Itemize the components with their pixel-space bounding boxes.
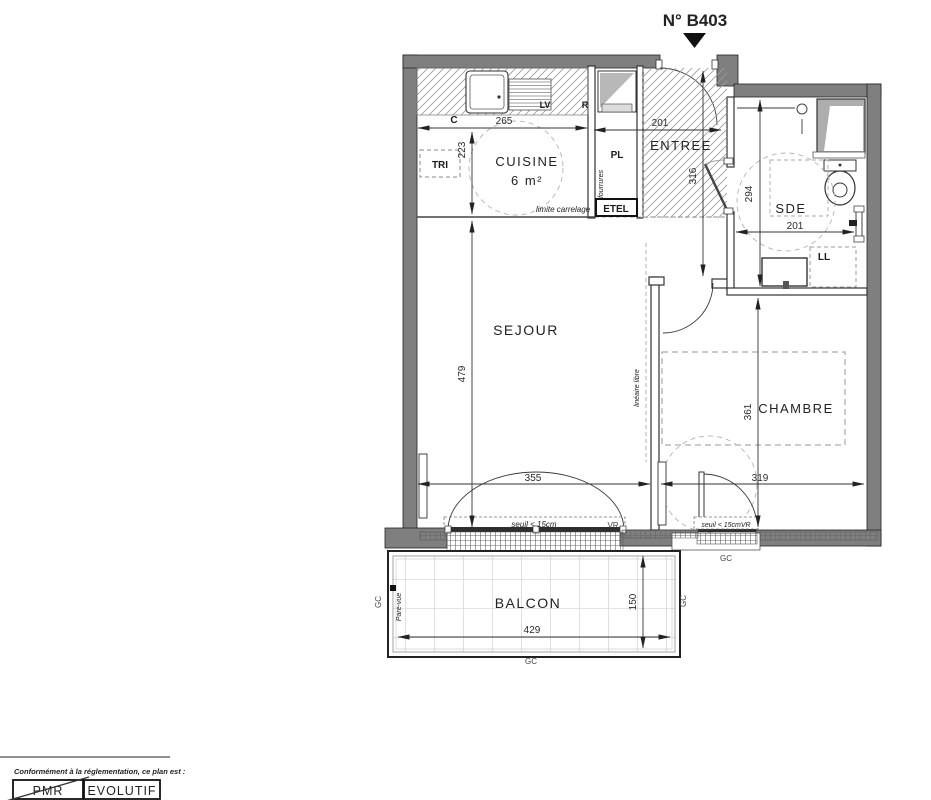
annotation-limite-carrelage: limite carrelage [536, 205, 591, 214]
radiator-chambre [658, 462, 666, 525]
floorplan-sheet: N° B403 [0, 0, 931, 800]
legend: Conformément à la réglementation, ce pla… [0, 757, 186, 800]
sejour-zone [419, 243, 646, 533]
dim-294: 294 [744, 185, 755, 202]
dim-479: 479 [457, 365, 468, 382]
wall-chambre-door-jamb [712, 279, 728, 288]
wall-entree-sde-lower [727, 212, 734, 290]
annotation-fourrures: fourrures [598, 169, 605, 198]
dim-429: 429 [524, 625, 541, 636]
appliance-base [602, 104, 632, 112]
towel-rail-bottom [854, 236, 864, 242]
dim-201-sde: 201 [787, 221, 804, 232]
sde-door-jamb-top [724, 158, 733, 164]
label-gc-balcony-left: GC [374, 596, 383, 608]
wall-top-right [734, 84, 881, 97]
wall-left [403, 55, 417, 533]
label-gc-balcony-right: GC [679, 595, 688, 607]
grate-strip-right [760, 532, 878, 540]
balcony-post [390, 585, 396, 591]
grate-strip-left [420, 532, 445, 540]
washing-machine-box [810, 247, 856, 287]
annotation-pare-vue: Pare-vue [396, 593, 403, 622]
room-cuisine: CUISINE [495, 154, 558, 169]
washbasin-tap [783, 281, 789, 289]
dim-319: 319 [752, 473, 769, 484]
vanity-drain-icon [797, 104, 807, 114]
dim-150: 150 [628, 593, 639, 610]
annotation-seuil-chambre: seuil < 15cmVR [701, 522, 750, 529]
label-c: C [450, 115, 457, 126]
unit-title: N° B403 [663, 11, 727, 48]
wall-sde-bottom [727, 288, 867, 295]
towel-rail-top [854, 206, 864, 212]
grate-strip-window [447, 532, 623, 551]
sink-drain [497, 95, 500, 98]
dim-316: 316 [688, 167, 699, 184]
wall-partition-cap [649, 277, 664, 285]
radiator-sejour [419, 454, 427, 518]
shower-tray [824, 106, 863, 151]
room-cuisine-area: 6 m² [511, 173, 543, 188]
exterior-walls [385, 55, 881, 548]
wall-pl-right [637, 66, 643, 218]
sink-basin [470, 75, 504, 109]
dim-355: 355 [525, 473, 542, 484]
wall-right [867, 84, 881, 546]
room-entree: ENTREE [650, 138, 712, 153]
wall-pl-left [588, 66, 595, 218]
room-chambre: CHAMBRE [758, 401, 834, 416]
label-gc-balcony-bottom: GC [525, 657, 537, 666]
dim-361: 361 [743, 403, 754, 420]
toilet-button [839, 164, 842, 167]
dim-201-entree: 201 [652, 118, 669, 129]
label-vr: VR [607, 521, 618, 530]
toilet-icon [825, 171, 855, 205]
label-lv: LV [540, 100, 551, 110]
shower-step [813, 152, 865, 158]
wall-top-left [403, 55, 660, 68]
unit-number-label: N° B403 [663, 11, 727, 30]
label-etel: ETEL [603, 204, 629, 215]
annotation-lineaire-libre: linéaire libre [634, 369, 641, 407]
grating-chambre-door [697, 533, 757, 544]
wall-entree-sde-upper [727, 97, 734, 167]
label-tri: TRI [432, 160, 448, 171]
sde-door-jamb-bottom [724, 208, 733, 214]
annotation-seuil-sejour: seuil < 15cm [511, 520, 556, 529]
label-ll: LL [818, 252, 830, 263]
label-pl: PL [611, 150, 624, 161]
grate-strip-mid [622, 530, 698, 538]
dim-265: 265 [496, 116, 513, 127]
room-sde: SDE [775, 201, 806, 216]
room-sejour: SEJOUR [493, 322, 559, 338]
sde-zone [737, 99, 865, 289]
label-r: R [582, 100, 589, 110]
room-balcon: BALCON [495, 595, 562, 611]
chambre-door-arc [663, 283, 713, 333]
legend-evolutif-label: EVOLUTIF [87, 784, 156, 798]
floorplan-svg: N° B403 [0, 0, 931, 800]
bed-placement-box [662, 352, 845, 445]
towel-rail-mount [849, 220, 857, 226]
dim-223: 223 [457, 141, 468, 158]
entrance-marker-icon [683, 33, 706, 48]
label-gc-door: GC [720, 554, 732, 563]
entrance-jamb-right [712, 60, 718, 69]
legend-caption: Conformément à la réglementation, ce pla… [14, 767, 186, 776]
